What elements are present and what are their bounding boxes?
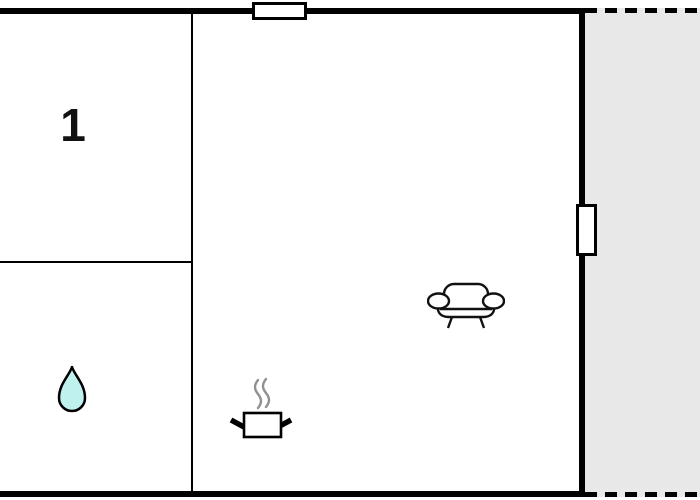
room-bathroom: [0, 263, 191, 491]
wall-interior-horizontal: [0, 261, 191, 263]
bedroom-1-label: 1: [60, 102, 86, 148]
terrace-area: [585, 8, 700, 497]
sofa-icon: [427, 281, 505, 336]
terrace-dashed-border-top: [585, 8, 700, 13]
wall-interior-vertical: [191, 14, 193, 491]
window-top-wall: [252, 2, 307, 20]
wall-bottom: [0, 491, 585, 497]
cooking-pot-icon: [227, 377, 295, 444]
floor-plan: 1: [0, 0, 700, 500]
terrace-dashed-border-bottom: [585, 492, 700, 497]
bedroom-1-label-box: 1: [0, 14, 146, 236]
window-right-wall: [576, 204, 597, 256]
water-drop-icon: [57, 365, 87, 420]
